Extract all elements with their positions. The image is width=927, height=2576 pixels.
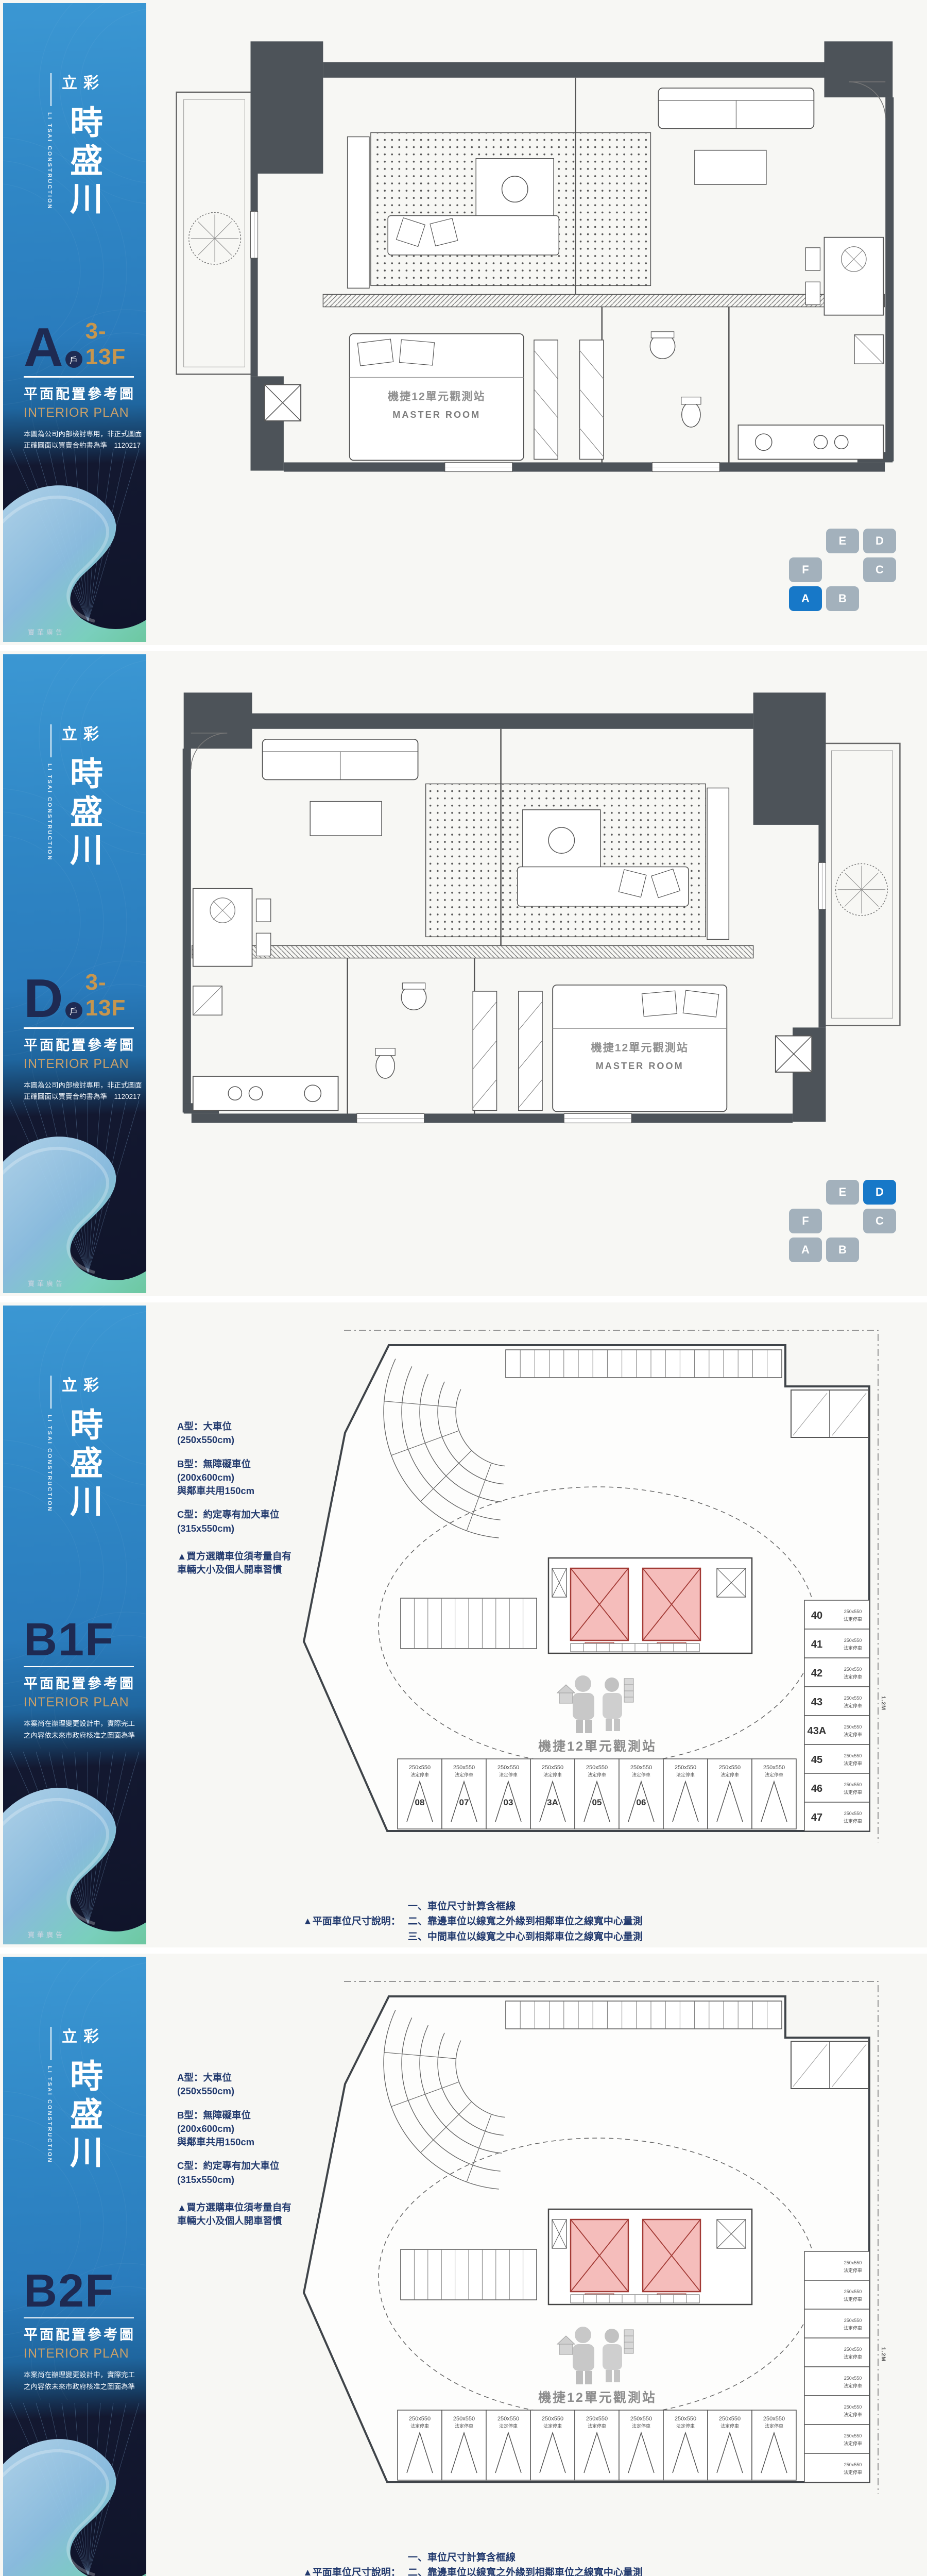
balcony [824,743,900,1025]
brand-name-en: LI TSAI CONSTRUCTION [46,764,53,861]
watermark-text: 機捷12單元觀測站 [538,2391,657,2405]
page-unit-a: LI TSAI CONSTRUCTION 立彩 時盛川 A 戶 3-13F 平面… [0,0,927,651]
brand-name-en: LI TSAI CONSTRUCTION [46,2066,53,2164]
svg-text:05: 05 [592,1798,602,1807]
disclaimer-line: 本案尚在辦理變更設計中，實際完工 [24,2369,134,2381]
svg-text:1.2M: 1.2M [880,2347,886,2362]
watermark-text: 機捷12單元觀測站 [538,1739,657,1754]
svg-text:250x550: 250x550 [844,1811,862,1816]
disclaimer-line: 本圖為公司內部檢討專用，非正式圖面 [24,1080,134,1092]
svg-text:法定停車: 法定停車 [844,1732,862,1737]
brand-name-vertical: 時盛川 [60,756,107,871]
wall-block [218,714,753,729]
svg-text:250x550: 250x550 [763,2416,785,2422]
chair [256,933,271,956]
disclaimer-line: 本案尚在辦理變更設計中，實際完工 [24,1718,134,1730]
wall-block [885,97,894,461]
svg-text:法定停車: 法定停車 [844,1818,862,1824]
wardrobe [534,340,558,459]
svg-text:法定停車: 法定停車 [410,1772,429,1777]
coffee-table [310,802,382,836]
parking-stall [804,2396,869,2425]
svg-text:250x550: 250x550 [844,2376,862,2381]
svg-text:法定停車: 法定停車 [499,2423,518,2429]
wave-art: 寶華廣告 [3,1749,146,1944]
svg-text:42: 42 [811,1668,822,1679]
brand-logo: 立彩 [62,70,105,93]
divider-rule [24,1666,134,1668]
svg-text:06: 06 [637,1798,646,1807]
pillow [642,991,677,1016]
locator-cell-d: D [863,1180,896,1205]
toilet [376,1054,394,1078]
svg-text:250x550: 250x550 [844,1638,862,1643]
plan-title-en: INTERIOR PLAN [24,2346,134,2361]
svg-text:47: 47 [811,1812,822,1823]
svg-text:法定停車: 法定停車 [844,2412,862,2417]
locator-cell-a: A [789,586,822,611]
svg-text:250x550: 250x550 [844,2433,862,2438]
locator-cell-b: B [826,1238,859,1262]
size-note-line: 一、車位尺寸計算含框線 [408,1899,643,1914]
svg-text:法定停車: 法定停車 [844,2441,862,2446]
size-note-lines: 一、車位尺寸計算含框線 二、靠邊車位以線寬之外緣到相鄰車位之線寬中心量測 三、中… [408,2550,643,2576]
wall-block [753,692,826,825]
parking-stall [804,2280,869,2309]
watermark-text: 機捷12單元觀測站 [591,1042,689,1054]
brand-sidebar: LI TSAI CONSTRUCTION 立彩 時盛川 D 戶 3-13F 平面… [3,654,146,1293]
locator-cell-b: B [826,586,859,611]
svg-text:法定停車: 法定停車 [455,2423,473,2429]
locator-cell-e: E [826,529,859,553]
svg-text:法定停車: 法定停車 [844,2469,862,2475]
svg-text:法定停車: 法定停車 [720,2423,739,2429]
svg-text:250x550: 250x550 [844,2404,862,2410]
apartment-floor-plan-a: 機捷12單元觀測站MASTER ROOM [165,14,912,507]
disclaimer-line: 本圖為公司內部檢討專用，非正式圖面 [24,429,134,440]
parking-stall [804,2251,869,2280]
brand-rule [50,73,51,106]
svg-text:250x550: 250x550 [675,2416,696,2422]
wave-art: 寶華廣告 [3,2400,146,2576]
svg-text:法定停車: 法定停車 [676,2423,695,2429]
svg-text:法定停車: 法定停車 [844,2383,862,2388]
plan-graphics [183,692,900,1123]
svg-text:250x550: 250x550 [453,2416,475,2422]
plan-title-zh: 平面配置參考圖 [24,2324,134,2344]
wardrobe [519,991,542,1110]
svg-text:法定停車: 法定停車 [844,1703,862,1708]
svg-text:法定停車: 法定停車 [844,2267,862,2273]
size-note-line: 一、車位尺寸計算含框線 [408,2550,643,2565]
stall-size-note: ▲平面車位尺寸說明： 一、車位尺寸計算含框線 二、靠邊車位以線寬之外緣到相鄰車位… [303,2550,643,2576]
wall-block [183,749,191,1112]
svg-text:250x550: 250x550 [844,1696,862,1701]
svg-text:法定停車: 法定停車 [844,1674,862,1680]
cabinet [707,788,729,939]
svg-text:250x550: 250x550 [586,2416,608,2422]
svg-text:250x550: 250x550 [844,2347,862,2352]
svg-text:250x550: 250x550 [586,1765,608,1771]
parking-stall [804,2338,869,2367]
unit-badge: 戶 [65,1002,82,1019]
unit-row: B2F [24,2272,134,2311]
core [548,1558,752,1653]
agency-credit: 寶華廣告 [28,627,65,637]
stall-size-note: ▲平面車位尺寸說明： 一、車位尺寸計算含框線 二、靠邊車位以線寬之外緣到相鄰車位… [303,1899,643,1944]
wall-block [250,171,257,377]
parking-stall [804,2367,869,2396]
svg-text:03: 03 [504,1798,513,1807]
apartment-floor-plan-d: 機捷12單元觀測站MASTER ROOM [165,666,912,1158]
wardrobe [580,340,604,459]
size-note-line: 二、靠邊車位以線寬之外緣到相鄰車位之線寬中心量測 [408,2565,643,2576]
plan-title-en: INTERIOR PLAN [24,1057,134,1072]
unit-label-block: B2F 平面配置參考圖 INTERIOR PLAN 本案尚在辦理變更設計中，實際… [24,2272,134,2393]
wall-block [192,1113,793,1123]
size-note-label: ▲平面車位尺寸說明： [303,1899,401,1944]
wave-art-svg [3,1097,146,1293]
agency-credit: 寶華廣告 [28,1278,65,1288]
locator-cell-f: F [789,1209,822,1233]
building-locator: E D F C A B [789,529,896,611]
svg-text:法定停車: 法定停車 [765,1772,783,1777]
size-note-lines: 一、車位尺寸計算含框線 二、靠邊車位以線寬之外緣到相鄰車位之線寬中心量測 三、中… [408,1899,643,1944]
page-b1f: LI TSAI CONSTRUCTION 立彩 時盛川 B1F 平面配置參考圖 … [0,1302,927,1954]
svg-text:43: 43 [811,1697,822,1708]
svg-text:250x550: 250x550 [844,1782,862,1787]
svg-text:法定停車: 法定停車 [844,2296,862,2302]
brand-name-vertical: 時盛川 [60,1408,107,1522]
svg-text:法定停車: 法定停車 [543,1772,562,1777]
page-b2f: LI TSAI CONSTRUCTION 立彩 時盛川 B2F 平面配置參考圖 … [0,1954,927,2576]
floor-label: B1F [24,1621,114,1660]
building-locator: E D F C A B [789,1180,896,1262]
brand-rule [50,2027,51,2060]
hatched-wall [192,945,753,958]
svg-text:250x550: 250x550 [497,1765,519,1771]
page-unit-d: LI TSAI CONSTRUCTION 立彩 時盛川 D 戶 3-13F 平面… [0,651,927,1302]
wave-art-svg [3,2400,146,2576]
brand-sidebar: LI TSAI CONSTRUCTION 立彩 時盛川 B2F 平面配置參考圖 … [3,1957,146,2576]
parking-stall [804,2453,869,2482]
unit-label-block: B1F 平面配置參考圖 INTERIOR PLAN 本案尚在辦理變更設計中，實際… [24,1621,134,1742]
svg-text:法定停車: 法定停車 [455,1772,473,1777]
unit-letter: A [24,325,63,370]
plan-graphics: 40250x550法定停車41250x550法定停車42250x550法定停車4… [304,1330,886,1842]
wall-block [184,692,252,749]
pillow [357,339,393,366]
locator-cell-e: E [826,1180,859,1205]
unit-floor-range: 3-13F [85,970,134,1021]
unit-letter: D [24,976,63,1021]
brand-sidebar: LI TSAI CONSTRUCTION 立彩 時盛川 A 戶 3-13F 平面… [3,3,146,642]
disclaimer-line: 之內容依未來市政府核准之圖面為準 [24,1730,134,1742]
core [548,2209,752,2304]
svg-text:法定停車: 法定停車 [844,1760,862,1766]
svg-text:法定停車: 法定停車 [765,2423,783,2429]
brand-logo: 立彩 [62,1372,105,1395]
brand-sidebar: LI TSAI CONSTRUCTION 立彩 時盛川 B1F 平面配置參考圖 … [3,1306,146,1944]
svg-text:250x550: 250x550 [719,1765,741,1771]
wall-block [818,822,826,1028]
chair [805,248,820,270]
svg-text:250x550: 250x550 [844,1724,862,1730]
locator-cell-a: A [789,1238,822,1262]
svg-text:法定停車: 法定停車 [410,2423,429,2429]
unit-row: A 戶 3-13F [24,318,134,370]
svg-text:250x550: 250x550 [844,1609,862,1614]
svg-text:250x550: 250x550 [453,1765,475,1771]
watermark-text: 機捷12單元觀測站 [388,391,486,403]
tree-symbol [189,212,241,264]
locator-cell-c: C [863,557,896,582]
stall-row-bottom: 250x550法定停車08250x550法定停車07250x550法定停車032… [398,1759,796,1829]
svg-text:法定停車: 法定停車 [588,2423,606,2429]
svg-text:41: 41 [811,1639,822,1650]
room-label: MASTER ROOM [392,410,480,420]
svg-text:40: 40 [811,1610,822,1621]
brand-rule [50,1376,51,1409]
agency-credit: 寶華廣告 [28,1929,65,1939]
stall-row-bottom: 250x550法定停車250x550法定停車250x550法定停車250x550… [398,2410,796,2480]
svg-text:250x550: 250x550 [719,2416,741,2422]
svg-text:250x550: 250x550 [630,1765,652,1771]
svg-text:08: 08 [415,1798,425,1807]
svg-text:法定停車: 法定停車 [676,1772,695,1777]
svg-text:250x550: 250x550 [542,2416,563,2422]
parking-floor-plan-b1f: 40250x550法定停車41250x550法定停車42250x550法定停車4… [268,1312,912,1904]
svg-text:250x550: 250x550 [497,2416,519,2422]
wall-block [824,41,892,97]
svg-text:法定停車: 法定停車 [844,2354,862,2360]
chair [256,899,271,922]
size-note-label: ▲平面車位尺寸說明： [303,2550,401,2576]
plan-graphics: 250x550法定停車250x550法定停車250x550法定停車250x550… [304,1981,886,2494]
floor-label: B2F [24,2272,114,2311]
divider-rule [24,2317,134,2319]
svg-text:法定停車: 法定停車 [588,1772,606,1777]
parking-stall [804,2425,869,2453]
toilet [682,402,700,427]
svg-text:250x550: 250x550 [763,1765,785,1771]
plan-title-zh: 平面配置參考圖 [24,1034,134,1054]
svg-text:250x550: 250x550 [844,1667,862,1672]
brand-logo: 立彩 [62,2024,105,2046]
svg-text:250x550: 250x550 [675,1765,696,1771]
svg-text:3A: 3A [547,1798,558,1807]
brand-logo: 立彩 [62,721,105,744]
unit-row: B1F [24,1621,134,1660]
hatched-wall [323,294,884,307]
svg-text:250x550: 250x550 [409,2416,431,2422]
brand-name-en: LI TSAI CONSTRUCTION [46,112,53,210]
svg-text:法定停車: 法定停車 [844,2325,862,2331]
stall-column-right: 250x550法定停車250x550法定停車250x550法定停車250x550… [804,2251,869,2482]
moto-parking-row [506,2001,782,2029]
svg-text:法定停車: 法定停車 [543,2423,562,2429]
unit-row: D 戶 3-13F [24,970,134,1021]
plan-title-zh: 平面配置參考圖 [24,1672,134,1692]
wave-art: 寶華廣告 [3,446,146,642]
svg-text:250x550: 250x550 [844,2462,862,2467]
svg-text:250x550: 250x550 [409,1765,431,1771]
stall-column-right: 40250x550法定停車41250x550法定停車42250x550法定停車4… [804,1600,869,1831]
unit-floor-range: 3-13F [85,318,134,370]
coffee-table [695,150,766,184]
svg-text:法定停車: 法定停車 [720,1772,739,1777]
svg-text:法定停車: 法定停車 [844,1645,862,1651]
brand-name-vertical: 時盛川 [60,105,107,219]
plan-title-en: INTERIOR PLAN [24,1695,134,1710]
room-label: MASTER ROOM [596,1061,684,1071]
unit-badge: 戶 [65,351,82,368]
disclaimer: 本案尚在辦理變更設計中，實際完工 之內容依未來市政府核准之圖面為準 [24,2369,134,2393]
unit-label-block: A 戶 3-13F 平面配置參考圖 INTERIOR PLAN 本圖為公司內部檢… [24,318,134,452]
svg-text:46: 46 [811,1783,822,1794]
moto-parking-row [506,1350,782,1378]
pillow [683,990,718,1017]
plan-title-zh: 平面配置參考圖 [24,383,134,403]
svg-text:250x550: 250x550 [542,1765,563,1771]
svg-text:250x550: 250x550 [844,2318,862,2323]
svg-text:法定停車: 法定停車 [844,1616,862,1622]
svg-text:250x550: 250x550 [844,2260,862,2265]
svg-text:法定停車: 法定停車 [844,1789,862,1795]
plan-title-en: INTERIOR PLAN [24,405,134,420]
locator-cell-c: C [863,1209,896,1233]
plan-graphics [177,41,894,471]
balcony [177,92,252,374]
locator-cell-d: D [863,529,896,553]
svg-text:250x550: 250x550 [630,2416,652,2422]
svg-text:法定停車: 法定停車 [499,1772,518,1777]
svg-text:250x550: 250x550 [844,1753,862,1758]
locator-cell-f: F [789,557,822,582]
brand-rule [50,724,51,757]
svg-text:法定停車: 法定停車 [632,2423,650,2429]
svg-text:07: 07 [459,1798,469,1807]
svg-text:43A: 43A [808,1725,827,1737]
pillow [400,340,435,365]
wardrobe [473,991,496,1110]
size-note-line: 三、中間車位以線寬之中心到相鄰車位之線寬中心量測 [408,1929,643,1944]
svg-text:45: 45 [811,1754,822,1766]
disclaimer-line: 之內容依未來市政府核准之圖面為準 [24,2381,134,2393]
tree-symbol [836,863,888,916]
disclaimer: 本案尚在辦理變更設計中，實際完工 之內容依未來市政府核准之圖面為準 [24,1718,134,1742]
cabinet [348,137,369,288]
chair [805,282,820,304]
svg-text:法定停車: 法定停車 [632,1772,650,1777]
wave-art: 寶華廣告 [3,1097,146,1293]
wall-block [284,462,885,471]
parking-floor-plan-b2f: 250x550法定停車250x550法定停車250x550法定停車250x550… [268,1963,912,2555]
brand-name-en: LI TSAI CONSTRUCTION [46,1415,53,1513]
parking-stall [804,2309,869,2338]
unit-label-block: D 戶 3-13F 平面配置參考圖 INTERIOR PLAN 本圖為公司內部檢… [24,970,134,1103]
brand-name-vertical: 時盛川 [60,2059,107,2173]
svg-text:250x550: 250x550 [844,2289,862,2294]
svg-text:1.2M: 1.2M [880,1696,886,1710]
size-note-line: 二、靠邊車位以線寬之外緣到相鄰車位之線寬中心量測 [408,1914,643,1929]
wall-block [323,62,858,78]
wall-block [250,41,323,174]
wave-art-svg [3,1749,146,1944]
wave-art-svg [3,446,146,642]
